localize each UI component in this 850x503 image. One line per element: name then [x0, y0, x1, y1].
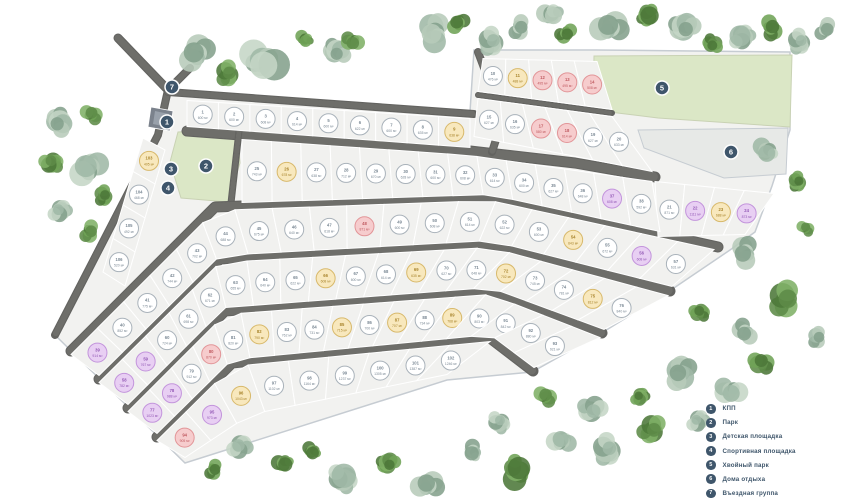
plot-marker-42[interactable]: 42744 м² [163, 269, 182, 288]
svg-text:600 м²: 600 м² [430, 176, 441, 180]
svg-text:49: 49 [397, 219, 402, 224]
svg-text:743 м²: 743 м² [252, 173, 263, 177]
tree [808, 326, 825, 348]
plot-marker-26[interactable]: 26678 м² [277, 162, 296, 181]
svg-text:1387 м²: 1387 м² [410, 367, 423, 371]
plot-marker-61[interactable]: 61698 м² [179, 309, 198, 328]
plot-marker-76[interactable]: 76840 м² [612, 298, 631, 317]
plot-marker-64[interactable]: 64640 м² [256, 273, 275, 292]
svg-text:702 м²: 702 м² [501, 275, 512, 279]
tree [688, 304, 710, 322]
svg-text:1023 м²: 1023 м² [146, 414, 159, 418]
plot-marker-92[interactable]: 92880 м² [521, 324, 540, 343]
svg-text:84: 84 [312, 324, 317, 329]
tree [630, 388, 650, 406]
svg-text:60: 60 [165, 335, 170, 340]
plot-marker-86[interactable]: 86700 м² [360, 315, 379, 334]
tree [789, 171, 806, 192]
svg-text:633 м²: 633 м² [614, 143, 625, 147]
svg-text:840 м²: 840 м² [617, 309, 628, 313]
legend-number-badge: 1 [706, 404, 716, 414]
svg-text:94: 94 [182, 432, 187, 437]
plot-marker-6[interactable]: 6622 м² [350, 116, 369, 135]
plot-marker-20[interactable]: 20633 м² [610, 132, 629, 151]
svg-text:20: 20 [617, 137, 622, 142]
tree [554, 24, 577, 44]
legend-label: КПП [723, 405, 736, 412]
svg-text:70: 70 [444, 265, 449, 270]
svg-text:520 м²: 520 м² [114, 264, 125, 268]
legend-item-7: 7Въездная группа [706, 489, 796, 499]
tree [328, 464, 357, 495]
plot-marker-101[interactable]: 1011387 м² [406, 356, 425, 375]
svg-text:672 м²: 672 м² [602, 249, 613, 253]
svg-text:648 м²: 648 м² [578, 195, 589, 199]
tree [593, 432, 621, 466]
svg-text:11: 11 [515, 73, 520, 78]
tree [732, 236, 757, 270]
plot-marker-62[interactable]: 62671 м² [201, 288, 220, 307]
svg-text:38: 38 [639, 199, 644, 204]
plot-marker-78[interactable]: 78988 м² [162, 384, 181, 403]
plot-marker-87[interactable]: 87707 м² [388, 313, 407, 332]
tree [714, 378, 748, 403]
plot-marker-70[interactable]: 70627 м² [437, 261, 456, 280]
svg-text:90: 90 [477, 313, 482, 318]
svg-text:627 м²: 627 м² [548, 189, 559, 193]
plot-marker-82[interactable]: 82790 м² [250, 325, 269, 344]
plot-marker-25[interactable]: 25743 м² [247, 162, 266, 181]
svg-text:2: 2 [204, 162, 208, 171]
tree [204, 459, 221, 480]
svg-text:781 м²: 781 м² [559, 291, 570, 295]
plot-marker-4[interactable]: 4614 м² [288, 112, 307, 131]
plot-marker-41[interactable]: 41775 м² [138, 293, 157, 312]
tree [729, 25, 756, 50]
svg-text:988 м²: 988 м² [167, 395, 178, 399]
svg-text:101: 101 [412, 360, 420, 365]
svg-text:476 м²: 476 м² [488, 77, 499, 81]
svg-text:580 м²: 580 м² [536, 130, 547, 134]
svg-text:707 м²: 707 м² [392, 324, 403, 328]
plot-marker-98[interactable]: 981164 м² [300, 371, 319, 390]
plot-marker-99[interactable]: 991237 м² [335, 366, 354, 385]
svg-text:106: 106 [116, 257, 124, 262]
plot-marker-9[interactable]: 9638 м² [445, 122, 464, 141]
plot-marker-95[interactable]: 95973 м² [203, 405, 222, 424]
svg-text:600 м²: 600 м² [323, 125, 334, 129]
svg-text:34: 34 [522, 177, 527, 182]
svg-text:973 м²: 973 м² [207, 416, 218, 420]
plot-marker-96[interactable]: 961043 м² [232, 386, 251, 405]
svg-text:842 м²: 842 м² [501, 325, 512, 329]
svg-text:22: 22 [693, 206, 698, 211]
svg-text:78: 78 [170, 388, 175, 393]
svg-text:51: 51 [468, 217, 473, 222]
svg-text:495 м²: 495 м² [537, 82, 548, 86]
plot-marker-53[interactable]: 53600 м² [529, 222, 548, 241]
svg-text:75: 75 [590, 294, 595, 299]
plot-marker-65[interactable]: 65622 м² [286, 271, 305, 290]
svg-text:762 м²: 762 м² [282, 333, 293, 337]
svg-text:614 м²: 614 м² [381, 276, 392, 280]
plot-marker-56[interactable]: 56608 м² [632, 246, 651, 265]
svg-text:12: 12 [540, 75, 545, 80]
plot-marker-2[interactable]: 2600 м² [225, 107, 244, 126]
plot-marker-23[interactable]: 23688 м² [711, 203, 730, 222]
svg-text:600 м²: 600 м² [351, 278, 362, 282]
plot-marker-34[interactable]: 34600 м² [515, 173, 534, 192]
svg-text:1237 м²: 1237 м² [339, 377, 352, 381]
svg-text:614 м²: 614 м² [292, 122, 303, 126]
plot-marker-37[interactable]: 37608 м² [603, 189, 622, 208]
svg-text:42: 42 [170, 273, 175, 278]
plot-marker-45[interactable]: 45675 м² [250, 222, 269, 241]
svg-text:68: 68 [384, 269, 389, 274]
plot-marker-13[interactable]: 13495 м² [558, 73, 577, 92]
svg-text:820 м²: 820 м² [228, 341, 239, 345]
tree [536, 4, 564, 24]
svg-text:26: 26 [284, 167, 289, 172]
svg-text:622 м²: 622 м² [500, 226, 511, 230]
plot-marker-44[interactable]: 44688 м² [216, 227, 235, 246]
svg-text:3: 3 [169, 165, 173, 174]
svg-text:69: 69 [414, 267, 419, 272]
svg-text:671 м²: 671 м² [205, 299, 216, 303]
svg-text:36: 36 [580, 188, 585, 193]
legend-label: Хвойный парк [723, 462, 769, 469]
svg-text:1043 м²: 1043 м² [235, 397, 248, 401]
tree [577, 396, 608, 422]
svg-text:83: 83 [284, 327, 289, 332]
plot-marker-100[interactable]: 1001305 м² [371, 361, 390, 380]
tree [747, 352, 774, 374]
plot-marker-50[interactable]: 50608 м² [425, 214, 444, 233]
plot-marker-17[interactable]: 17580 м² [532, 119, 551, 138]
legend-item-5: 5Хвойный парк [706, 460, 796, 470]
plot-marker-7[interactable]: 7600 м² [382, 118, 401, 137]
map-marker-1[interactable]: 1 [160, 115, 174, 129]
tree [38, 152, 63, 172]
plot-marker-103[interactable]: 103405 м² [140, 151, 159, 170]
svg-text:92: 92 [528, 328, 533, 333]
svg-text:87: 87 [395, 317, 400, 322]
plot-marker-28[interactable]: 28712 м² [337, 163, 356, 182]
svg-text:86: 86 [367, 320, 372, 325]
plot-marker-10[interactable]: 10476 м² [483, 67, 502, 86]
plot-marker-83[interactable]: 83762 м² [277, 323, 296, 342]
svg-text:21: 21 [667, 204, 672, 209]
plot-marker-68[interactable]: 68614 м² [377, 265, 396, 284]
svg-text:52: 52 [502, 219, 507, 224]
svg-text:921 м²: 921 м² [550, 347, 561, 351]
tree [179, 34, 216, 72]
svg-text:44: 44 [223, 231, 228, 236]
svg-text:105: 105 [126, 223, 134, 228]
svg-text:28: 28 [344, 168, 349, 173]
svg-text:700 м²: 700 м² [364, 326, 375, 330]
svg-text:688 м²: 688 м² [221, 238, 232, 242]
svg-text:64: 64 [263, 277, 268, 282]
svg-text:1102 м²: 1102 м² [268, 387, 281, 391]
plot-marker-51[interactable]: 51614 м² [460, 212, 479, 231]
plot-marker-3[interactable]: 3608 м² [256, 109, 275, 128]
svg-text:614 м²: 614 м² [562, 134, 573, 138]
plot-marker-43[interactable]: 43702 м² [188, 244, 207, 263]
plot-marker-67[interactable]: 67600 м² [346, 267, 365, 286]
plot-marker-47[interactable]: 47618 м² [320, 218, 339, 237]
svg-text:812 м²: 812 м² [588, 300, 599, 304]
plot-marker-81[interactable]: 81820 м² [224, 331, 243, 350]
svg-text:608 м²: 608 м² [460, 177, 471, 181]
tree [546, 431, 577, 452]
plot-marker-39[interactable]: 39914 м² [88, 343, 107, 362]
svg-text:873 м²: 873 м² [742, 215, 753, 219]
svg-text:40: 40 [120, 323, 125, 328]
plot-marker-52[interactable]: 52622 м² [495, 215, 514, 234]
tree [216, 59, 238, 86]
svg-text:14: 14 [590, 79, 595, 84]
svg-text:6: 6 [729, 148, 733, 157]
svg-text:82: 82 [257, 329, 262, 334]
plot-marker-57[interactable]: 57631 м² [666, 254, 685, 273]
plot-marker-97[interactable]: 971102 м² [265, 376, 284, 395]
plot-marker-69[interactable]: 69635 м² [407, 263, 426, 282]
tree [503, 454, 530, 491]
svg-text:15: 15 [487, 115, 492, 120]
plot-marker-49[interactable]: 49600 м² [390, 215, 409, 234]
svg-text:29: 29 [374, 168, 379, 173]
plot-marker-54[interactable]: 54643 м² [564, 230, 583, 249]
map-marker-7[interactable]: 7 [165, 80, 179, 94]
plot-marker-58[interactable]: 58782 м² [115, 373, 134, 392]
tree [94, 184, 112, 206]
svg-text:627 м²: 627 м² [588, 139, 599, 143]
svg-text:104: 104 [136, 189, 144, 194]
plot-marker-1[interactable]: 1600 м² [193, 105, 212, 124]
plot-marker-77[interactable]: 771023 м² [143, 403, 162, 422]
legend-item-2: 2Парк [706, 418, 796, 428]
svg-text:655 м²: 655 м² [230, 287, 241, 291]
plot-marker-27[interactable]: 27638 м² [307, 163, 326, 182]
plot-marker-21[interactable]: 21871 м² [660, 200, 679, 219]
legend-label: Спортивная площадка [723, 448, 796, 455]
plot-marker-74[interactable]: 74781 м² [554, 280, 573, 299]
svg-text:81: 81 [231, 335, 236, 340]
plot-marker-24[interactable]: 24873 м² [737, 204, 756, 223]
plot-marker-29[interactable]: 29670 м² [366, 164, 385, 183]
svg-text:74: 74 [562, 285, 567, 290]
plot-marker-94[interactable]: 94905 м² [175, 428, 194, 447]
plot-marker-85[interactable]: 85715 м² [332, 318, 351, 337]
legend-item-4: 4Спортивная площадка [706, 446, 796, 456]
svg-text:73: 73 [533, 276, 538, 281]
plot-marker-18[interactable]: 18614 м² [558, 123, 577, 142]
plot-marker-46[interactable]: 46640 м² [285, 220, 304, 239]
svg-text:600 м²: 600 м² [386, 129, 397, 133]
plot-marker-79[interactable]: 79912 м² [182, 364, 201, 383]
svg-text:600 м²: 600 м² [395, 226, 406, 230]
svg-text:16: 16 [513, 119, 518, 124]
svg-text:66: 66 [323, 273, 328, 278]
svg-text:768 м²: 768 м² [447, 319, 458, 323]
svg-text:675 м²: 675 м² [254, 232, 265, 236]
plot-marker-19[interactable]: 19627 м² [584, 128, 603, 147]
plot-marker-30[interactable]: 30628 м² [396, 164, 415, 183]
svg-text:744 м²: 744 м² [167, 280, 178, 284]
svg-text:48: 48 [362, 221, 367, 226]
plot-marker-88[interactable]: 88734 м² [415, 311, 434, 330]
map-marker-3[interactable]: 3 [164, 162, 178, 176]
tree [788, 28, 810, 55]
plot-marker-48[interactable]: 48871 м² [355, 217, 374, 236]
svg-text:43: 43 [195, 248, 200, 253]
plot-marker-59[interactable]: 59767 м² [136, 352, 155, 371]
plot-marker-15[interactable]: 15627 м² [480, 110, 499, 129]
svg-text:608 м²: 608 м² [637, 257, 648, 261]
svg-text:103: 103 [146, 156, 154, 161]
svg-text:19: 19 [591, 132, 596, 137]
svg-text:631 м²: 631 м² [671, 265, 682, 269]
svg-text:89: 89 [450, 313, 455, 318]
svg-text:628 м²: 628 м² [401, 175, 412, 179]
svg-text:622 м²: 622 м² [355, 127, 366, 131]
plot-marker-33[interactable]: 33614 м² [485, 168, 504, 187]
svg-text:600 м²: 600 м² [229, 118, 240, 122]
svg-text:61: 61 [186, 314, 191, 319]
plot-marker-36[interactable]: 36648 м² [573, 184, 592, 203]
plot-marker-38[interactable]: 38592 м² [632, 194, 651, 213]
plot-marker-31[interactable]: 31600 м² [426, 165, 445, 184]
plot-marker-12[interactable]: 12495 м² [533, 71, 552, 90]
svg-text:508 м²: 508 м² [587, 86, 598, 90]
svg-text:99: 99 [342, 370, 347, 375]
tree [702, 33, 723, 53]
plot-marker-66[interactable]: 66608 м² [316, 269, 335, 288]
plot-marker-11[interactable]: 11488 м² [508, 69, 527, 88]
svg-text:1246 м²: 1246 м² [445, 362, 458, 366]
plot-marker-35[interactable]: 35627 м² [544, 178, 563, 197]
plot-marker-40[interactable]: 40852 м² [113, 318, 132, 337]
svg-text:870 м²: 870 м² [206, 356, 217, 360]
plot-marker-32[interactable]: 32608 м² [456, 166, 475, 185]
plot-marker-84[interactable]: 84731 м² [305, 320, 324, 339]
tree [667, 356, 698, 391]
svg-text:98: 98 [307, 375, 312, 380]
plot-marker-73[interactable]: 73745 м² [526, 271, 545, 290]
legend-item-6: 6Дома отдыха [706, 474, 796, 484]
road-texture [118, 38, 168, 90]
svg-text:492 м²: 492 м² [124, 230, 135, 234]
svg-text:638 м²: 638 м² [449, 133, 460, 137]
svg-text:72: 72 [504, 268, 509, 273]
tree [376, 452, 401, 473]
svg-text:1111 м²: 1111 м² [690, 212, 702, 216]
svg-text:871 м²: 871 м² [359, 228, 370, 232]
svg-text:53: 53 [537, 227, 542, 232]
plot-marker-93[interactable]: 93921 м² [545, 337, 564, 356]
tree [48, 200, 73, 222]
svg-text:614 м²: 614 м² [490, 179, 501, 183]
plot-marker-60[interactable]: 60724 м² [158, 331, 177, 350]
plot-marker-105[interactable]: 105492 м² [120, 219, 139, 238]
svg-text:18: 18 [565, 128, 570, 133]
tree [295, 30, 313, 47]
svg-text:93: 93 [553, 341, 558, 346]
map-marker-5[interactable]: 5 [655, 81, 669, 95]
svg-text:608 м²: 608 м² [261, 120, 272, 124]
svg-text:488 м²: 488 м² [513, 80, 524, 84]
svg-text:734 м²: 734 м² [420, 322, 431, 326]
plot-marker-22[interactable]: 221111 м² [686, 201, 705, 220]
svg-text:790 м²: 790 м² [254, 336, 265, 340]
plot-marker-16[interactable]: 16635 м² [506, 115, 525, 134]
tree [508, 14, 528, 40]
plot-marker-71[interactable]: 71648 м² [467, 261, 486, 280]
svg-text:640 м²: 640 м² [260, 284, 271, 288]
svg-text:13: 13 [565, 77, 570, 82]
plot-marker-14[interactable]: 14508 м² [583, 75, 602, 94]
map-marker-4[interactable]: 4 [161, 181, 175, 195]
svg-text:71: 71 [474, 265, 479, 270]
plot-marker-63[interactable]: 63655 м² [226, 276, 245, 295]
plot-marker-104[interactable]: 104468 м² [130, 185, 149, 204]
plot-marker-102[interactable]: 1021246 м² [441, 351, 460, 370]
legend-label: Дома отдыха [723, 476, 766, 483]
map-marker-6[interactable]: 6 [724, 145, 738, 159]
svg-text:914 м²: 914 м² [92, 354, 103, 358]
svg-text:495 м²: 495 м² [562, 84, 573, 88]
svg-text:1164 м²: 1164 м² [304, 382, 317, 386]
svg-text:627 м²: 627 м² [484, 121, 495, 125]
legend-number-badge: 7 [706, 489, 716, 499]
svg-text:88: 88 [422, 315, 427, 320]
svg-text:7: 7 [170, 83, 174, 92]
svg-text:702 м²: 702 м² [192, 255, 203, 259]
tree [732, 318, 758, 345]
svg-text:91: 91 [503, 318, 508, 323]
legend-item-3: 3Детская площадка [706, 432, 796, 442]
svg-text:47: 47 [327, 223, 332, 228]
svg-text:32: 32 [463, 170, 468, 175]
svg-text:27: 27 [314, 167, 319, 172]
svg-text:30: 30 [403, 169, 408, 174]
svg-text:782 м²: 782 м² [119, 384, 130, 388]
svg-text:648 м²: 648 м² [471, 272, 482, 276]
plot-marker-106[interactable]: 106520 м² [110, 253, 129, 272]
tree [479, 26, 504, 56]
legend-number-badge: 6 [706, 474, 716, 484]
svg-text:46: 46 [292, 224, 297, 229]
map-marker-2[interactable]: 2 [199, 159, 213, 173]
svg-text:10: 10 [491, 71, 496, 76]
svg-text:912 м²: 912 м² [187, 375, 198, 379]
plot-marker-5[interactable]: 5600 м² [319, 114, 338, 133]
svg-text:17: 17 [539, 123, 544, 128]
tree [271, 455, 294, 472]
svg-text:80: 80 [209, 349, 214, 354]
svg-text:600 м²: 600 м² [534, 233, 545, 237]
plot-marker-75[interactable]: 75812 м² [583, 289, 602, 308]
tree [302, 441, 321, 459]
tree [239, 40, 290, 81]
master-plan-page: 1600 м²2600 м²3608 м²4614 м²5600 м²6622 … [0, 0, 850, 503]
plot-marker-80[interactable]: 80870 м² [202, 345, 221, 364]
plot-marker-72[interactable]: 72702 м² [497, 264, 516, 283]
plot-marker-55[interactable]: 55672 м² [598, 238, 617, 257]
plot-marker-8[interactable]: 8635 м² [413, 120, 432, 139]
svg-text:23: 23 [719, 207, 724, 212]
